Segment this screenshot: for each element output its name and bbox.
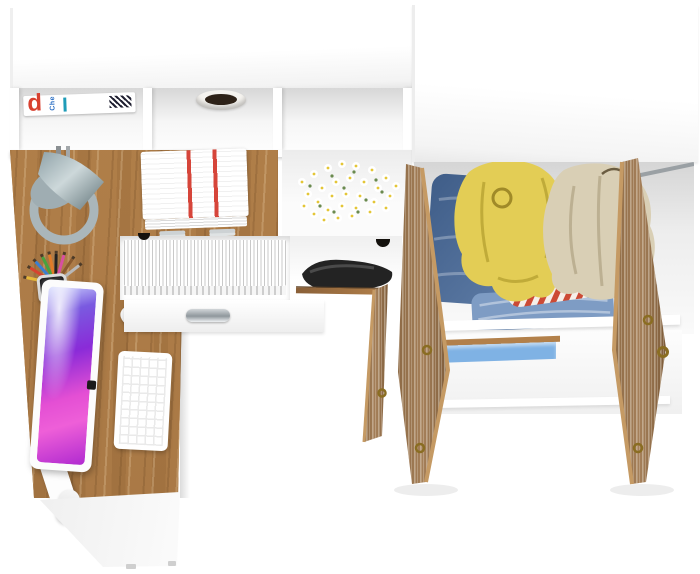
magazine-cover-letter: d (27, 90, 43, 116)
paper-tray-documents (140, 148, 248, 220)
cubby-wall-left (10, 88, 19, 150)
cubby-divider-1 (143, 88, 152, 150)
book-row (292, 92, 404, 138)
wardrobe-door-right (614, 158, 668, 484)
notebook-page-edges (124, 286, 286, 295)
open-drawer-notebooks (120, 236, 290, 300)
magazine-cover-word: Che (49, 96, 57, 111)
wardrobe-doors (360, 150, 700, 500)
plant-pot (196, 90, 246, 110)
desk-foot-right (168, 561, 176, 566)
keyboard (113, 351, 172, 452)
hutch-top-panel (10, 8, 412, 88)
cubby-divider-2 (273, 88, 282, 150)
magazine-top-cover: d Che (23, 92, 136, 116)
notebook-pages (124, 240, 286, 286)
drawer-handle-cutout-left (138, 233, 150, 240)
magazine-cover-stripe (63, 98, 66, 112)
drawer-handle (186, 309, 230, 322)
monitor-screen (37, 286, 97, 465)
paper-tray-leg-left (159, 230, 185, 235)
keyboard-keys (119, 356, 168, 446)
furniture-product-render: d Che (0, 0, 700, 574)
desk-lamp (12, 146, 116, 250)
desk-foot-left (126, 564, 136, 569)
paper-tray (138, 148, 253, 242)
monitor-rear-port (87, 380, 97, 390)
hutch-cubby-row: d Che (10, 88, 412, 150)
plant-foliage (205, 94, 237, 105)
magazine-edge-stack (24, 114, 139, 148)
door-shadow-left (394, 484, 458, 496)
magazine-cover-pattern (109, 95, 131, 108)
cubby-wall-right (403, 88, 412, 150)
paper-tray-leg-right (209, 229, 235, 234)
monitor-bezel (29, 279, 104, 473)
wardrobe-door-left (398, 164, 448, 484)
magazine-stack: d Che (23, 92, 141, 148)
wardrobe-door-narrow-left (364, 284, 388, 442)
door-shadow-right (610, 484, 674, 496)
drawer-front-lower (124, 300, 324, 332)
notebook-tabs (166, 238, 284, 246)
wardrobe-top-panel (412, 5, 698, 162)
